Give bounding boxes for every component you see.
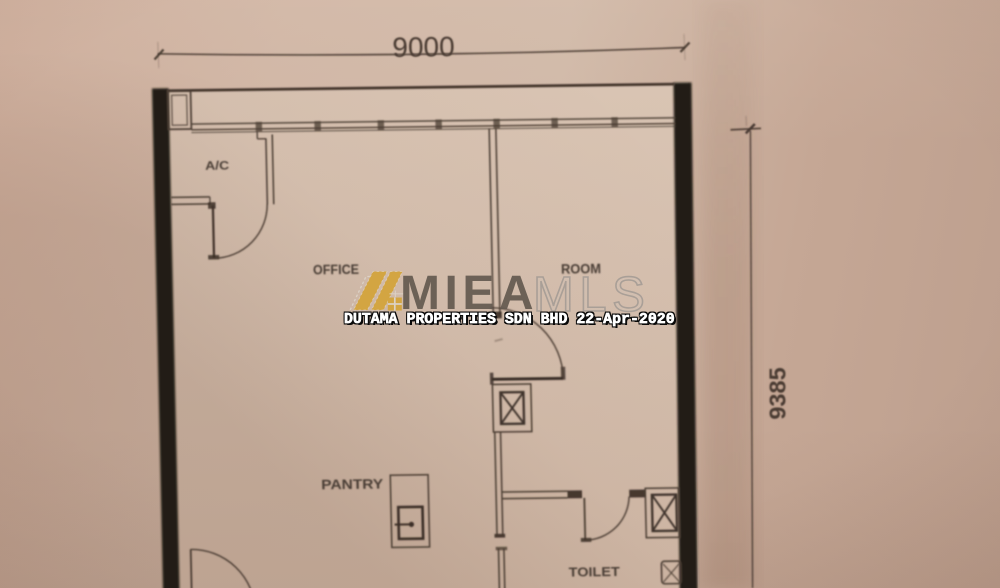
svg-text:PANTRY: PANTRY [321, 476, 383, 492]
svg-text:OFFICE: OFFICE [313, 262, 359, 278]
svg-text:TOILET: TOILET [569, 564, 620, 580]
svg-text:9000: 9000 [392, 31, 455, 63]
svg-text:A/C: A/C [205, 159, 230, 173]
svg-text:9385: 9385 [765, 367, 791, 419]
